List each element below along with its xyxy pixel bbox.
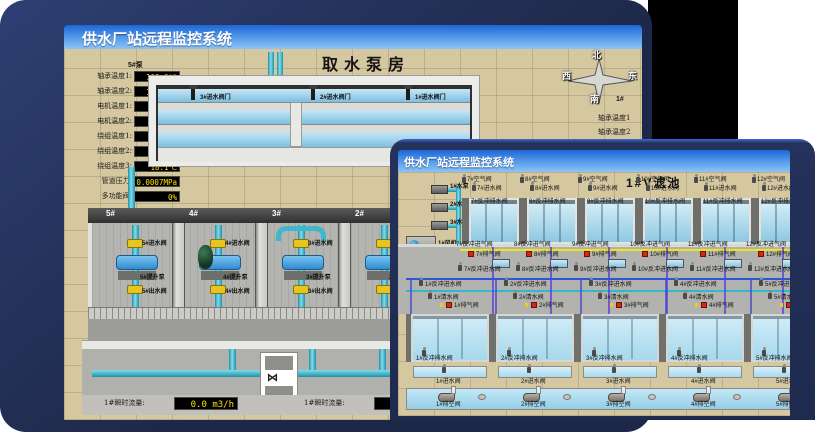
background-panel: [648, 0, 738, 145]
inlet-valve-label: 12#进水阀: [767, 186, 790, 193]
front-window-title: 供水厂站远程监控系统: [404, 154, 514, 170]
empty-valve-label: 1#排空阀: [436, 402, 461, 409]
exhaust-valve-icon[interactable]: [642, 251, 648, 257]
lower-exhaust-valve-icon[interactable]: [701, 302, 707, 308]
backwash-valve-icon[interactable]: [690, 265, 694, 271]
inlet-valve-label: 3#进水阀门: [200, 95, 231, 102]
back-window-title: 供水厂站远程监控系统: [82, 28, 232, 49]
air-valve-label: 11#空气阀: [699, 177, 727, 184]
lower-backwash-valve-label: 4#反冲进水阀: [680, 282, 717, 289]
water-pump-unit[interactable]: [431, 203, 448, 212]
gallery-column-line-lower: [495, 278, 497, 314]
pool-divider-line: [522, 319, 524, 359]
backwash-valve-label: 9#反冲进水阀: [580, 267, 617, 274]
panel-row-label: 多功能阀:: [84, 193, 132, 201]
inlet-channel: [583, 366, 657, 378]
channel-inlet-valve-label: 1#进水阀: [436, 379, 461, 386]
exhaust-valve-label: 10#排气阀: [650, 252, 678, 259]
channel-elbow-pipe: [693, 393, 710, 402]
inlet-valve-icon-head: [189, 85, 197, 89]
compass-south-label: 南: [590, 95, 599, 105]
pool-divider-line: [775, 204, 777, 242]
panel-value-box: 0%: [134, 191, 180, 202]
backwash-valve-icon[interactable]: [516, 265, 520, 271]
channel-float: [733, 394, 741, 400]
clean-water-valve-icon[interactable]: [683, 293, 687, 299]
empty-valve-label: 4#排空阀: [691, 402, 716, 409]
bay-name-label: 3#: [272, 210, 281, 219]
panel-row-label: 绕组温度1:: [84, 133, 132, 141]
panel-row-label: 管道压力:: [84, 178, 132, 186]
front-titlebar: 供水厂站远程监控系统: [398, 150, 790, 172]
pool-divider-line: [437, 319, 439, 359]
channel-elbow-pipe: [608, 393, 625, 402]
channel-elbow-pipe: [438, 393, 455, 402]
pool-divider-line: [692, 319, 694, 359]
exhaust-valve-label: 8#排气阀: [534, 252, 559, 259]
backwash-air-valve-label: 8#反冲进气阀: [514, 242, 551, 249]
inlet-valve-label: 1#进水阀门: [415, 95, 446, 102]
air-valve-icon[interactable]: [694, 177, 698, 183]
inlet-channel: [413, 366, 487, 378]
pool-divider-line: [631, 319, 633, 359]
empty-valve-label: 2#排空阀: [521, 402, 546, 409]
bay-name-label: 4#: [189, 210, 198, 219]
bay-wall: [338, 223, 351, 307]
lower-exhaust-valve-label: 4#排气阀: [709, 303, 734, 310]
gallery-column-line-lower: [580, 278, 582, 314]
inlet-valve-label: 11#进水阀: [709, 186, 737, 193]
drain-valve-label: 11#反冲排水阀: [703, 199, 743, 206]
filter-pool-bottom: [751, 314, 790, 362]
clean-water-valve-label: 4#清水阀: [689, 295, 714, 302]
gallery-column-line-lower: [750, 278, 752, 314]
pool-divider-line: [717, 204, 719, 242]
air-valve-icon[interactable]: [520, 177, 524, 183]
panel-row-label: 绕组温度3:: [84, 163, 132, 171]
tank-center-divider: [290, 102, 302, 147]
inlet-valve-icon[interactable]: [530, 185, 534, 191]
flow-valve-box[interactable]: ⋈: [260, 352, 298, 398]
gallery-teal-line: [406, 290, 790, 292]
inlet-valve-label: 10#进水阀: [651, 186, 679, 193]
bay-inlet-valve-label: 3#进水阀: [308, 241, 333, 248]
bay-outlet-valve-label: 3#出水阀: [308, 289, 333, 296]
gallery-column-line-lower: [410, 278, 412, 314]
exhaust-valve-icon[interactable]: [584, 251, 590, 257]
bay-pump-label: 4#提升泵: [223, 275, 248, 282]
inlet-valve-icon[interactable]: [472, 185, 476, 191]
inlet-valve-icon[interactable]: [588, 185, 592, 191]
panel-row-label: 电机温度2:: [84, 118, 132, 126]
pool-divider-line: [559, 204, 561, 242]
backwash-air-valve-label: 7#反冲进气阀: [456, 242, 493, 249]
exhaust-valve-icon[interactable]: [468, 251, 474, 257]
bay-inlet-valve-label: 4#进水阀: [225, 241, 250, 248]
panel-value-box: 0.0007MPa: [134, 176, 180, 187]
clean-water-valve-icon[interactable]: [598, 293, 602, 299]
lower-exhaust-valve-icon[interactable]: [616, 302, 622, 308]
compass-east-label: 东: [628, 72, 637, 82]
backwash-valve-icon[interactable]: [632, 265, 636, 271]
channel-elbow-pipe: [523, 393, 540, 402]
drain-valve-label: 9#反冲排水阀: [587, 199, 624, 206]
equipment-label: 1#水泵: [450, 184, 469, 191]
lower-backwash-valve-label: 2#反冲进水阀: [510, 282, 547, 289]
channel-inlet-valve-icon[interactable]: [697, 367, 701, 373]
channel-inlet-valve-icon[interactable]: [527, 367, 531, 373]
lower-exhaust-valve-icon[interactable]: [531, 302, 537, 308]
panel-row-label: 绕组温度2:: [84, 148, 132, 156]
right-panel-label: 轴承温度2: [598, 129, 630, 137]
lower-backwash-valve-icon[interactable]: [589, 280, 593, 286]
empty-valve-label: 3#排空阀: [606, 402, 631, 409]
compass-north-label: 北: [592, 51, 601, 61]
pump-panel-header: 5#泵: [128, 60, 143, 70]
lower-exhaust-valve-label: 2#排气阀: [539, 303, 564, 310]
clean-water-valve-icon[interactable]: [513, 293, 517, 299]
right-panel-label: 轴承温度1: [598, 115, 630, 123]
inlet-channel: [498, 366, 572, 378]
air-valve-label: 7#空气阀: [467, 177, 492, 184]
water-pump-unit[interactable]: [431, 221, 448, 230]
channel-elbow-stub: [451, 386, 456, 394]
panel-row-label: 轴承温度2:: [84, 88, 132, 96]
bay-pump-body[interactable]: [116, 255, 158, 270]
inlet-valve-icon[interactable]: [762, 185, 766, 191]
inlet-valve-icon-head: [404, 85, 412, 89]
flow-right-label: 1#瞬时流量:: [304, 400, 345, 408]
panel-row-label: 轴承温度1:: [84, 73, 132, 81]
lower-backwash-valve-icon[interactable]: [419, 280, 423, 286]
inlet-valve-label: 9#进水阀: [593, 186, 618, 193]
inlet-valve-icon-head: [309, 85, 317, 89]
riser-pipe: [277, 52, 283, 76]
lower-backwash-valve-icon[interactable]: [504, 280, 508, 286]
backwash-valve-icon[interactable]: [748, 265, 752, 271]
pool-drain-valve-label: 3#反冲排水阀: [586, 356, 623, 363]
right-panel-header: 1#: [616, 96, 624, 104]
pool-divider-line: [543, 204, 545, 242]
channel-elbow-pipe: [778, 393, 790, 402]
backwash-valve-label: 7#反冲进水阀: [464, 267, 501, 274]
gallery-column-line-lower: [665, 278, 667, 314]
channel-inlet-valve-icon[interactable]: [442, 367, 446, 373]
bay-outlet-valve-label: 4#出水阀: [225, 289, 250, 296]
channel-inlet-valve-label: 4#进水阀: [691, 379, 716, 386]
valve-tag: [780, 303, 783, 307]
inlet-valve-label: 2#进水阀门: [320, 95, 351, 102]
lower-exhaust-valve-icon[interactable]: [786, 302, 790, 308]
panel-row-label: 电机温度1:: [84, 103, 132, 111]
down-pipe: [128, 167, 135, 211]
exhaust-valve-label: 11#排气阀: [708, 252, 736, 259]
pool-divider-line: [461, 319, 463, 359]
flow-valve-top: [265, 356, 293, 370]
drain-valve-label: 12#反冲排水阀: [761, 199, 790, 206]
pool-drain-valve-label: 5#反冲排水阀: [756, 356, 790, 363]
exhaust-valve-label: 9#排气阀: [592, 252, 617, 259]
channel-elbow-stub: [536, 386, 541, 394]
filter-pool-scene: 1#V滤池1#水泵2#水泵3#水泵1#风机2#风机3#风机7#空气阀7#进水阀7…: [398, 172, 790, 416]
flow-left-value: 0.0 m3/h: [174, 397, 238, 410]
filter-pool-window: 供水厂站远程监控系统 1#V滤池1#水泵2#水泵3#水泵1#风机2#风机3#风机…: [390, 139, 815, 420]
valve-tag: [610, 303, 613, 307]
air-valve-icon[interactable]: [578, 177, 582, 183]
valve-tag: [695, 303, 698, 307]
compass-west-label: 西: [562, 72, 571, 82]
bay-outlet-valve-icon[interactable]: [127, 285, 143, 294]
pool-divider-line: [617, 204, 619, 242]
pool-divider-line: [716, 319, 718, 359]
pool-divider-line: [601, 204, 603, 242]
bay-outlet-valve-icon[interactable]: [293, 285, 309, 294]
channel-float: [648, 394, 656, 400]
tank-water-2: [158, 110, 470, 124]
bay-inlet-valve-label: 5#进水阀: [142, 241, 167, 248]
dosing-tank: [198, 245, 213, 269]
lower-backwash-valve-label: 3#反冲进水阀: [595, 282, 632, 289]
channel-inlet-valve-label: 5#进水阀: [776, 379, 790, 386]
backwash-valve-label: 8#反冲进水阀: [522, 267, 559, 274]
air-valve-label: 8#空气阀: [525, 177, 550, 184]
clean-water-valve-label: 5#清水阀: [774, 295, 790, 302]
channel-elbow-stub: [706, 386, 711, 394]
channel-float: [478, 394, 486, 400]
bay-pump-body[interactable]: [282, 255, 324, 270]
inlet-valve-icon[interactable]: [646, 185, 650, 191]
flow-left-label: 1#瞬时流量:: [104, 400, 145, 408]
riser-pipe: [268, 52, 274, 76]
drain-valve-label: 7#反冲排水阀: [471, 199, 508, 206]
exhaust-valve-label: 12#排气阀: [766, 252, 790, 259]
pool-divider-line: [485, 204, 487, 242]
lower-exhaust-valve-icon[interactable]: [446, 302, 452, 308]
air-valve-label: 10#空气阀: [641, 177, 669, 184]
clean-water-valve-label: 3#清水阀: [604, 295, 629, 302]
bottom-channel: [406, 388, 790, 410]
clean-water-valve-icon[interactable]: [428, 293, 432, 299]
air-valve-icon[interactable]: [752, 177, 756, 183]
empty-valve-label: 5#排空阀: [776, 402, 790, 409]
pool-drain-valve-label: 2#反冲排水阀: [501, 356, 538, 363]
backwash-air-valve-label: 12#反冲进气阀: [746, 242, 786, 249]
flow-valve-bowtie-icon: ⋈: [267, 372, 291, 384]
bay-wall: [255, 223, 268, 307]
backwash-valve-icon[interactable]: [574, 265, 578, 271]
lower-exhaust-valve-label: 3#排气阀: [624, 303, 649, 310]
lower-exhaust-valve-label: 1#排气阀: [454, 303, 479, 310]
pool-drain-valve-label: 4#反冲排水阀: [671, 356, 708, 363]
pool-divider-line: [777, 319, 779, 359]
backwash-air-valve-label: 10#反冲进气阀: [630, 242, 670, 249]
lower-backwash-valve-icon[interactable]: [674, 280, 678, 286]
pool-divider-line: [546, 319, 548, 359]
exhaust-valve-icon[interactable]: [526, 251, 532, 257]
compass: 北西南东: [556, 53, 642, 109]
inlet-valve-icon[interactable]: [704, 185, 708, 191]
scene-title: 取水泵房: [322, 51, 410, 75]
channel-float: [563, 394, 571, 400]
inlet-valve-label: 7#进水阀: [477, 186, 502, 193]
channel-inlet-valve-label: 3#进水阀: [606, 379, 631, 386]
backwash-valve-icon[interactable]: [458, 265, 462, 271]
pool-drain-valve-label: 1#反冲排水阀: [416, 356, 453, 363]
bay-name-label: 5#: [106, 210, 115, 219]
channel-elbow-stub: [621, 386, 626, 394]
filter-pool-screen: 供水厂站远程监控系统 1#V滤池1#水泵2#水泵3#水泵1#风机2#风机3#风机…: [398, 150, 790, 416]
exhaust-valve-label: 7#排气阀: [476, 252, 501, 259]
lower-backwash-valve-label: 1#反冲进水阀: [425, 282, 462, 289]
clean-water-valve-icon[interactable]: [768, 293, 772, 299]
pool-divider-line: [607, 319, 609, 359]
pool-divider-line: [501, 204, 503, 242]
inlet-channel: [668, 366, 742, 378]
exhaust-valve-icon[interactable]: [700, 251, 706, 257]
bay-inlet-valve-icon[interactable]: [293, 239, 309, 248]
valve-tag: [440, 303, 443, 307]
pool-divider-line: [659, 204, 661, 242]
channel-inlet-valve-icon[interactable]: [782, 367, 786, 373]
clean-water-valve-label: 1#清水阀: [434, 295, 459, 302]
back-titlebar: 供水厂站远程监控系统: [64, 25, 642, 49]
bay-name-label: 2#: [355, 210, 364, 219]
bay-pump-label: 3#提升泵: [306, 275, 331, 282]
pool-divider-line: [733, 204, 735, 242]
bay-outlet-valve-label: 5#出水阀: [142, 289, 167, 296]
bay-outlet-valve-icon[interactable]: [210, 285, 226, 294]
backwash-valve-label: 11#反冲进水阀: [696, 267, 736, 274]
air-valve-icon[interactable]: [462, 177, 466, 183]
pool-divider-line: [675, 204, 677, 242]
valve-tag: [525, 303, 528, 307]
exhaust-valve-icon[interactable]: [758, 251, 764, 257]
backwash-valve-label: 12#反冲进水阀: [754, 267, 790, 274]
air-valve-icon[interactable]: [636, 177, 640, 183]
bay-inlet-valve-icon[interactable]: [210, 239, 226, 248]
channel-inlet-valve-label: 2#进水阀: [521, 379, 546, 386]
clean-water-valve-label: 2#清水阀: [519, 295, 544, 302]
drain-valve-label: 8#反冲排水阀: [529, 199, 566, 206]
bay-wall: [172, 223, 185, 307]
drain-valve-label: 10#反冲排水阀: [645, 199, 685, 206]
gallery-air-pipe: [460, 249, 790, 251]
water-pump-unit[interactable]: [431, 185, 448, 194]
bay-pump-label: 5#提升泵: [140, 275, 165, 282]
air-valve-label: 9#空气阀: [583, 177, 608, 184]
gallery-water-line: [406, 278, 790, 280]
lower-backwash-valve-label: 5#反冲进水阀: [765, 282, 790, 289]
backwash-air-valve-label: 9#反冲进气阀: [572, 242, 609, 249]
bay-inlet-valve-icon[interactable]: [127, 239, 143, 248]
air-valve-label: 12#空气阀: [757, 177, 785, 184]
backwash-air-valve-label: 11#反冲进气阀: [688, 242, 728, 249]
channel-inlet-valve-icon[interactable]: [612, 367, 616, 373]
backwash-valve-label: 10#反冲进水阀: [638, 267, 678, 274]
lower-backwash-valve-icon[interactable]: [759, 280, 763, 286]
inlet-valve-label: 8#进水阀: [535, 186, 560, 193]
